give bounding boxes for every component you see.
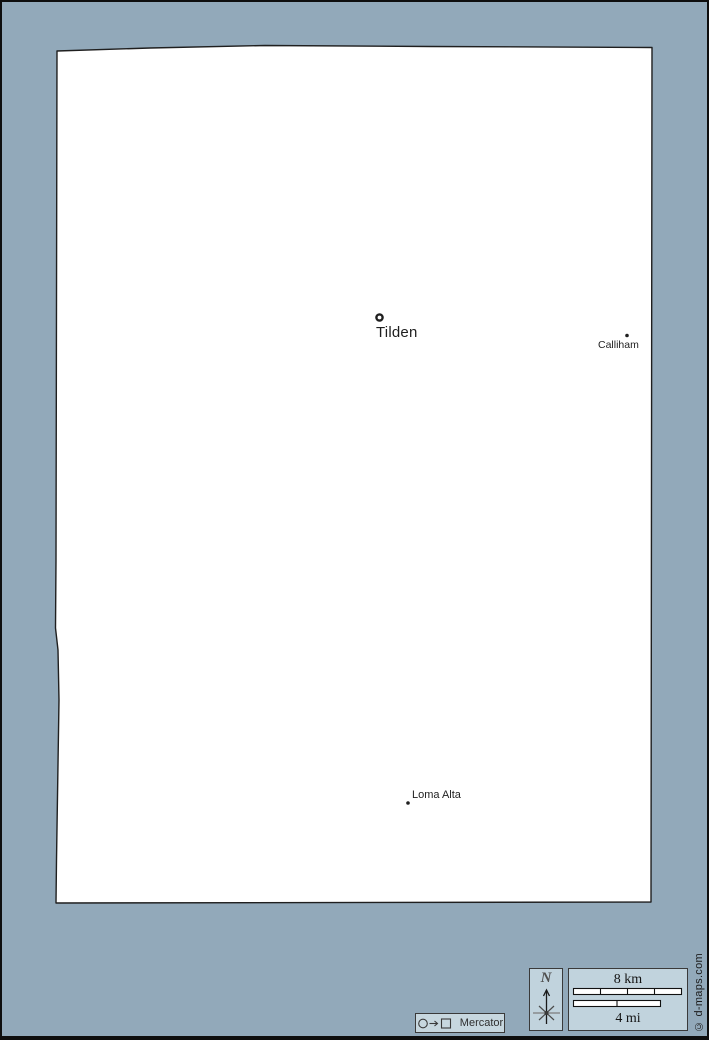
projection-legend-panel: Mercator	[415, 1013, 505, 1033]
compass-rose-panel: N	[529, 968, 563, 1031]
tilden-county-seat-marker-icon	[376, 314, 382, 320]
place-label-loma-alta: Loma Alta	[412, 789, 461, 801]
north-arrow-icon	[531, 987, 562, 1027]
circle-arrow-square-icon	[417, 1017, 455, 1030]
scale-mi-label: 4 mi	[569, 1011, 687, 1026]
county-map-svg	[0, 0, 709, 1040]
scale-bar-panel: 8 km 4 mi	[568, 968, 688, 1031]
place-label-tilden: Tilden	[376, 325, 418, 342]
scale-km-label: 8 km	[569, 972, 687, 987]
scale-bars-icon	[569, 987, 686, 1011]
calliham-town-marker-icon	[625, 334, 629, 338]
place-label-calliham: Calliham	[598, 340, 639, 352]
compass-north-label: N	[530, 970, 562, 987]
map-canvas: Tilden Calliham Loma Alta N 8 km 4 mi	[0, 0, 709, 1040]
dmaps-credit: © d-maps.com	[693, 953, 705, 1032]
county-boundary	[56, 46, 653, 904]
loma-alta-town-marker-icon	[406, 801, 410, 805]
projection-label: Mercator	[460, 1017, 503, 1029]
